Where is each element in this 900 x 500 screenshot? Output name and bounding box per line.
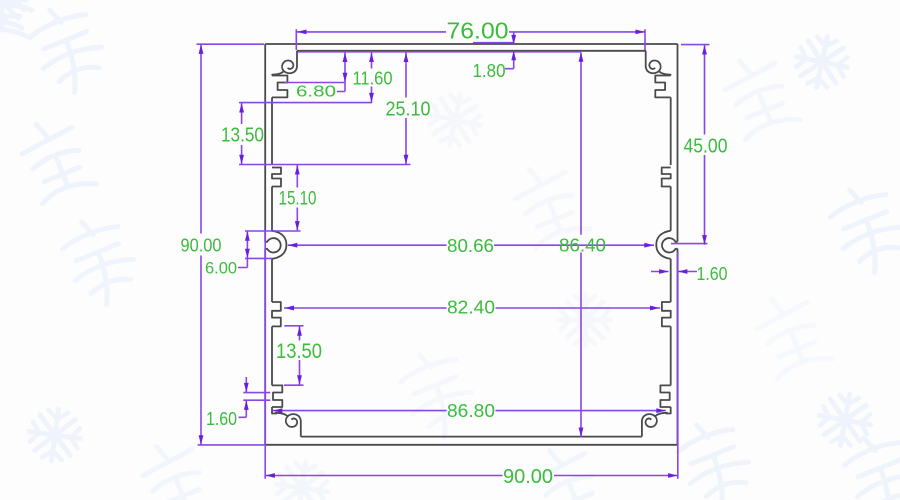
svg-text:6.80: 6.80 — [296, 84, 336, 101]
svg-text:25.10: 25.10 — [386, 99, 431, 121]
svg-text:15.10: 15.10 — [279, 188, 317, 210]
svg-text:80.66: 80.66 — [447, 236, 494, 256]
svg-text:45.00: 45.00 — [684, 136, 728, 158]
svg-text:86.80: 86.80 — [447, 400, 495, 421]
svg-text:11.60: 11.60 — [353, 69, 393, 89]
svg-text:90.00: 90.00 — [181, 235, 222, 256]
svg-text:82.40: 82.40 — [447, 298, 495, 318]
svg-text:6.00: 6.00 — [205, 260, 237, 278]
svg-text:86.40: 86.40 — [559, 236, 606, 256]
svg-text:13.50: 13.50 — [221, 125, 264, 147]
svg-text:90.00: 90.00 — [503, 465, 553, 488]
svg-text:76.00: 76.00 — [447, 18, 509, 44]
svg-text:1.60: 1.60 — [206, 408, 237, 429]
svg-text:1.60: 1.60 — [697, 263, 728, 284]
svg-text:1.80: 1.80 — [473, 60, 506, 81]
svg-text:13.50: 13.50 — [276, 340, 322, 363]
